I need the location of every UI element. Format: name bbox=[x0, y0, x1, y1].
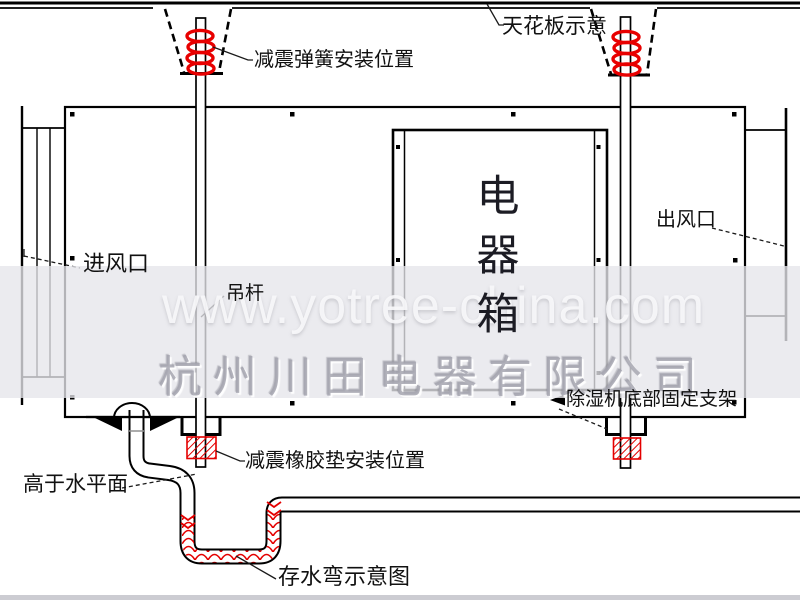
rubber-pad-left bbox=[187, 437, 216, 459]
label-above-water-level: 高于水平面 bbox=[23, 473, 128, 496]
ceiling-lines bbox=[0, 3, 800, 8]
inlet-duct bbox=[22, 106, 64, 405]
hanger-rod-left bbox=[196, 18, 206, 467]
drain-pipe-outline bbox=[137, 410, 800, 557]
label-air-outlet: 出风口 bbox=[656, 209, 716, 231]
drain-pipe-bore bbox=[137, 410, 800, 557]
label-hanger-rod: 吊杆 bbox=[226, 284, 264, 305]
label-water-trap: 存水弯示意图 bbox=[278, 565, 410, 589]
diagram-stage: www.yotree-china.com 杭州川田电器有限公司 天花板示意 减震… bbox=[0, 0, 800, 600]
label-rubber-pad: 减震橡胶垫安装位置 bbox=[245, 450, 425, 472]
electric-box-char: 箱 bbox=[472, 286, 524, 345]
label-bottom-bracket: 除湿机底部固定支架 bbox=[566, 390, 737, 411]
installation-diagram bbox=[0, 0, 800, 600]
drain-funnel-left bbox=[95, 418, 122, 431]
rubber-pad-right bbox=[614, 438, 641, 459]
label-damping-spring: 减震弹簧安装位置 bbox=[254, 49, 414, 71]
electric-box-char: 电 bbox=[472, 168, 524, 227]
drain-assembly bbox=[86, 403, 800, 556]
label-ceiling: 天花板示意 bbox=[502, 15, 607, 38]
label-air-inlet: 进风口 bbox=[83, 252, 149, 276]
drain-funnel-right bbox=[150, 418, 177, 431]
electric-box-char: 器 bbox=[472, 227, 524, 286]
outlet-duct bbox=[745, 108, 786, 341]
electric-box-caption: 电 器 箱 bbox=[472, 168, 524, 345]
bottom-edge-strip bbox=[0, 595, 800, 600]
